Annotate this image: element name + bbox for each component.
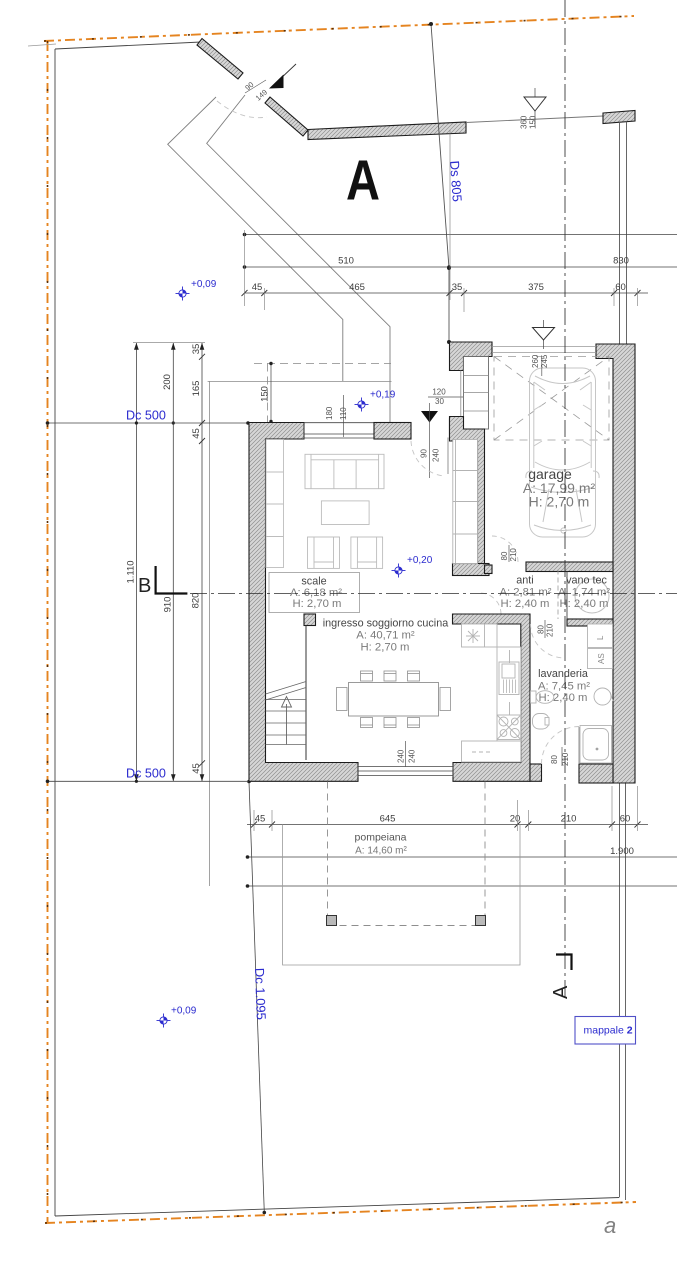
svg-text:165: 165 [191, 381, 202, 397]
svg-text:A: 14,60 m²: A: 14,60 m² [355, 846, 407, 857]
svg-text:240: 240 [397, 749, 406, 763]
svg-text:A: 1,74 m²: A: 1,74 m² [558, 587, 610, 599]
svg-text:90: 90 [420, 449, 429, 458]
svg-text:H: 2,70 m: H: 2,70 m [293, 598, 342, 610]
svg-text:Dc 500: Dc 500 [126, 409, 166, 423]
svg-text:35: 35 [452, 282, 463, 293]
svg-text:260: 260 [531, 354, 540, 368]
svg-text:1.900: 1.900 [610, 846, 634, 857]
svg-text:210: 210 [546, 623, 555, 637]
svg-text:H: 2,40 m: H: 2,40 m [539, 692, 588, 704]
svg-text:510: 510 [338, 256, 354, 267]
svg-text:H: 2,70 m: H: 2,70 m [361, 642, 410, 654]
svg-text:45: 45 [191, 428, 202, 439]
svg-text:+0,19: +0,19 [370, 390, 396, 401]
svg-text:A: 40,71 m²: A: 40,71 m² [356, 630, 415, 642]
svg-text:360: 360 [520, 115, 529, 129]
svg-text:mappale 2: mappale 2 [584, 1025, 633, 1037]
svg-text:vano tec: vano tec [566, 575, 607, 587]
svg-text:A: A [346, 149, 380, 213]
svg-text:AS: AS [597, 653, 606, 664]
svg-text:+0,09: +0,09 [171, 1006, 197, 1017]
svg-text:60: 60 [615, 282, 626, 293]
svg-text:150: 150 [529, 115, 538, 129]
svg-text:A: 7,45 m²: A: 7,45 m² [538, 681, 590, 693]
svg-text:lavanderia: lavanderia [538, 668, 588, 680]
svg-text:+0,20: +0,20 [407, 555, 433, 566]
svg-text:60: 60 [620, 814, 631, 825]
svg-text:scale: scale [301, 576, 326, 588]
svg-text:200: 200 [162, 374, 173, 390]
svg-text:20: 20 [510, 814, 521, 825]
svg-text:Ds 805: Ds 805 [447, 160, 465, 202]
svg-text:240: 240 [408, 749, 417, 763]
svg-text:A: 2,81 m²: A: 2,81 m² [499, 587, 551, 599]
svg-text:Dc 1.095: Dc 1.095 [252, 968, 269, 1021]
svg-text:Dc 500: Dc 500 [126, 767, 166, 781]
svg-text:375: 375 [528, 282, 544, 293]
svg-text:240: 240 [432, 448, 441, 462]
svg-text:150: 150 [260, 386, 271, 402]
svg-text:45: 45 [255, 814, 266, 825]
svg-text:210: 210 [561, 814, 577, 825]
svg-text:910: 910 [163, 597, 174, 613]
svg-text:120: 120 [432, 388, 446, 397]
svg-text:anti: anti [516, 575, 533, 587]
svg-text:245: 245 [540, 354, 549, 368]
svg-text:35: 35 [191, 344, 202, 355]
svg-text:H: 2,40 m: H: 2,40 m [501, 598, 550, 610]
svg-text:1.110: 1.110 [126, 560, 137, 583]
svg-text:pompeiana: pompeiana [355, 832, 407, 844]
svg-text:A: A [550, 985, 572, 999]
svg-text:210: 210 [509, 548, 518, 562]
svg-text:45: 45 [191, 763, 202, 774]
svg-text:80: 80 [500, 551, 509, 560]
svg-text:80: 80 [550, 755, 559, 764]
svg-text:110: 110 [339, 407, 348, 420]
svg-text:645: 645 [380, 814, 396, 825]
svg-text:+0,09: +0,09 [191, 279, 217, 290]
svg-text:H: 2,40 m: H: 2,40 m [560, 598, 609, 610]
svg-text:B: B [138, 575, 151, 597]
svg-text:30: 30 [435, 397, 444, 406]
svg-text:830: 830 [613, 256, 629, 267]
svg-text:465: 465 [349, 282, 365, 293]
svg-text:L: L [596, 635, 605, 640]
svg-text:80: 80 [537, 625, 546, 634]
svg-text:820: 820 [191, 593, 202, 609]
svg-text:180: 180 [325, 406, 334, 420]
svg-text:210: 210 [561, 752, 570, 766]
svg-text:H: 2,70 m: H: 2,70 m [529, 494, 590, 510]
svg-text:45: 45 [252, 282, 263, 293]
svg-text:ingresso soggiorno cucina: ingresso soggiorno cucina [323, 618, 448, 630]
svg-text:a: a [604, 1213, 616, 1238]
